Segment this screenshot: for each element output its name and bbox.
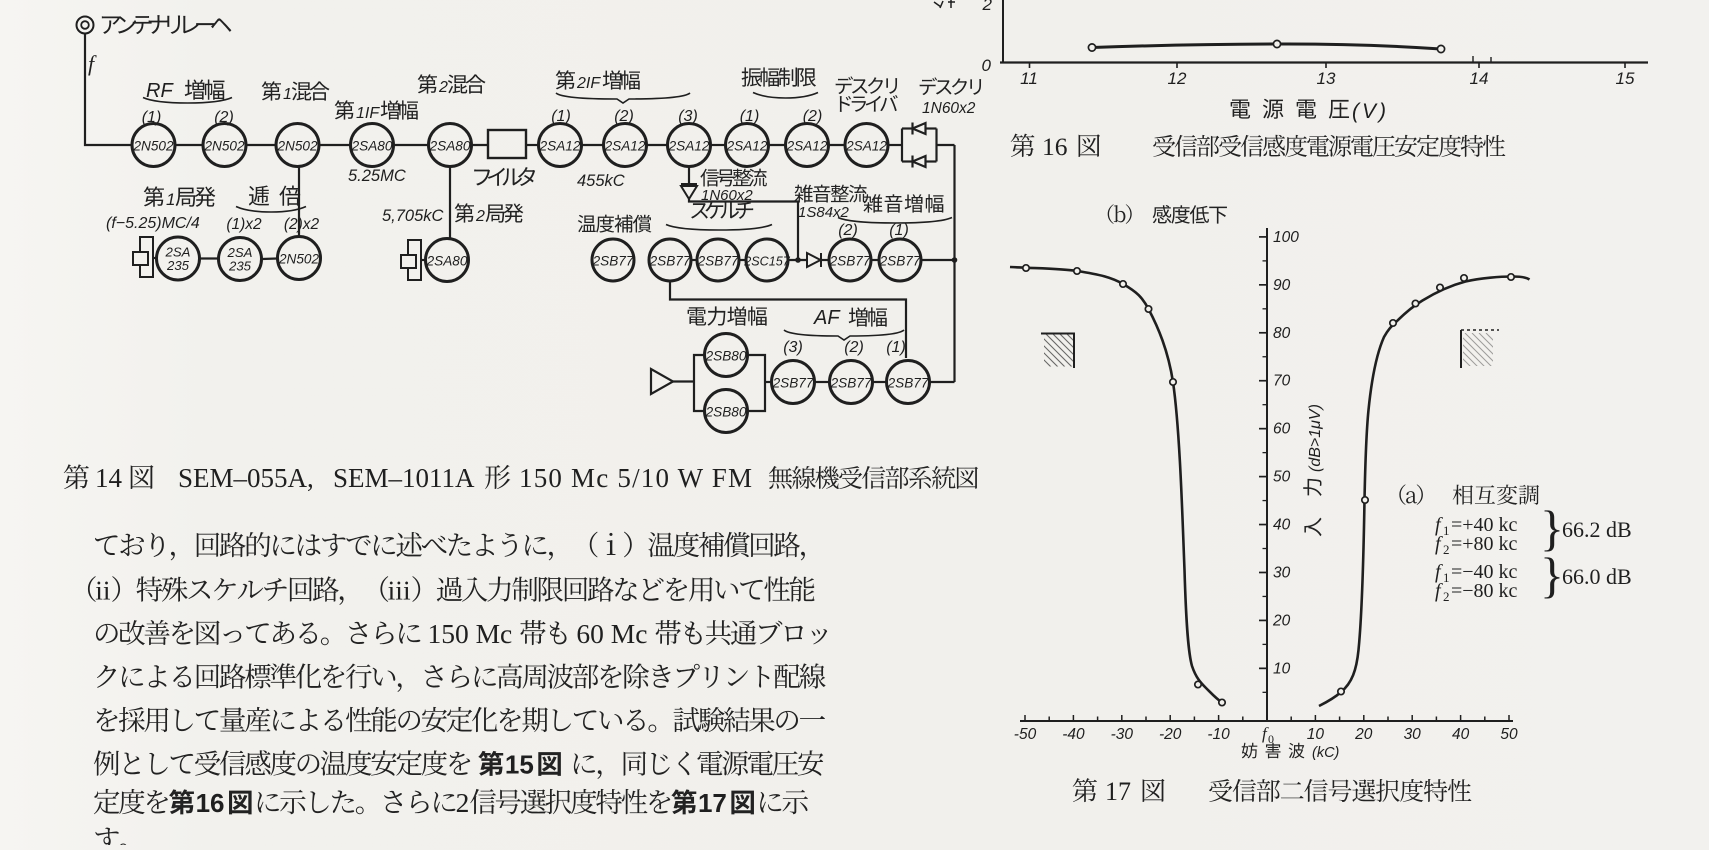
svg-text:2SA80: 2SA80	[426, 254, 468, 269]
svg-text:50: 50	[1500, 726, 1518, 743]
svg-text:2SB77: 2SB77	[887, 376, 929, 391]
svg-text:f: f	[88, 51, 97, 76]
svg-text:30: 30	[1273, 564, 1291, 581]
svg-text:f: f	[1435, 580, 1443, 602]
svg-text:2: 2	[982, 0, 993, 14]
svg-text:60: 60	[1273, 421, 1291, 438]
svg-text:66.2 dB: 66.2 dB	[1562, 517, 1632, 542]
svg-text:455kC: 455kC	[577, 172, 625, 190]
svg-text:16: 16	[196, 788, 225, 818]
svg-text:17: 17	[698, 788, 727, 818]
svg-text:1N60x2: 1N60x2	[922, 100, 976, 117]
svg-text:2SB77: 2SB77	[772, 376, 814, 391]
svg-text:2: 2	[1443, 589, 1450, 604]
svg-text:-30: -30	[1111, 726, 1134, 743]
svg-text:13: 13	[1317, 69, 1336, 88]
svg-text:2N502: 2N502	[276, 139, 317, 154]
svg-text:15: 15	[1616, 69, 1635, 88]
svg-text:150 Mc 5/10 W FM: 150 Mc 5/10 W FM	[519, 463, 753, 493]
svg-text:0: 0	[982, 56, 992, 75]
svg-text:235: 235	[166, 258, 190, 273]
svg-text:ii: ii	[95, 575, 111, 606]
svg-text:-40: -40	[1062, 726, 1085, 743]
svg-text:5,705kC: 5,705kC	[382, 207, 444, 225]
svg-text:(1): (1)	[886, 339, 906, 356]
svg-text:20: 20	[1272, 612, 1291, 629]
svg-text:2: 2	[475, 208, 485, 225]
svg-text:2SC157: 2SC157	[743, 255, 791, 269]
svg-text:50: 50	[1273, 469, 1291, 486]
svg-text:2SA12: 2SA12	[726, 139, 768, 154]
svg-text:100: 100	[1273, 229, 1299, 246]
svg-text:f: f	[1435, 533, 1443, 555]
svg-text:RF: RF	[146, 80, 174, 102]
svg-text:2IF: 2IF	[576, 75, 601, 92]
svg-text:2: 2	[438, 79, 448, 96]
svg-text:2SA80: 2SA80	[429, 139, 471, 154]
svg-text:80: 80	[1273, 325, 1291, 342]
svg-text:2SA12: 2SA12	[845, 139, 887, 154]
svg-text:2N502: 2N502	[132, 139, 173, 154]
svg-text:5.25MC: 5.25MC	[348, 167, 406, 185]
svg-text:11: 11	[1020, 69, 1038, 88]
svg-text:(kC): (kC)	[1312, 745, 1339, 761]
svg-text:60 Mc: 60 Mc	[570, 618, 655, 649]
svg-text:2: 2	[456, 787, 470, 818]
svg-text:2SB77: 2SB77	[649, 254, 691, 269]
svg-text:2SB80: 2SB80	[705, 405, 747, 420]
svg-text:14: 14	[1470, 69, 1489, 88]
svg-text:90: 90	[1273, 277, 1291, 294]
svg-text:1IF: 1IF	[356, 105, 380, 122]
svg-text:AF: AF	[813, 307, 841, 329]
svg-text:30: 30	[1404, 726, 1422, 743]
svg-text:14: 14	[95, 463, 123, 493]
svg-text:2SB80: 2SB80	[705, 349, 747, 364]
svg-text:(2): (2)	[844, 339, 864, 356]
svg-text:-20: -20	[1159, 726, 1182, 743]
svg-text:(f−5.25)MC/4: (f−5.25)MC/4	[106, 215, 200, 232]
svg-text:(1)x2: (1)x2	[226, 216, 262, 233]
svg-text:iii: iii	[388, 575, 411, 606]
svg-text:15: 15	[505, 750, 534, 780]
svg-text:66.0 dB: 66.0 dB	[1562, 564, 1632, 589]
svg-text:2SB77: 2SB77	[697, 254, 739, 269]
svg-text:16: 16	[1042, 132, 1068, 161]
svg-text:=+80 kc: =+80 kc	[1451, 533, 1518, 555]
svg-text:2SB77: 2SB77	[879, 254, 921, 269]
svg-text:2SB77: 2SB77	[829, 254, 871, 269]
svg-text:(2): (2)	[838, 222, 858, 239]
svg-text:40: 40	[1452, 726, 1470, 743]
svg-text:235: 235	[228, 259, 252, 274]
svg-text:2SA12: 2SA12	[539, 139, 581, 154]
svg-text:1: 1	[1443, 523, 1450, 538]
svg-text:2: 2	[1443, 542, 1450, 557]
svg-text:SEM–1011A: SEM–1011A	[333, 463, 475, 493]
svg-text:70: 70	[1273, 373, 1291, 390]
svg-text:12: 12	[1168, 69, 1187, 88]
svg-text:10: 10	[1307, 726, 1325, 743]
svg-text:1: 1	[1443, 570, 1450, 585]
svg-text:17: 17	[1105, 777, 1131, 806]
svg-text:(dB>1μV): (dB>1μV)	[1307, 404, 1324, 472]
svg-text:2SB77: 2SB77	[592, 254, 634, 269]
svg-text:40: 40	[1273, 517, 1291, 534]
svg-text:(V): (V)	[1352, 100, 1389, 123]
svg-text:1: 1	[283, 86, 292, 103]
svg-text:1: 1	[166, 190, 175, 209]
svg-text:2SA12: 2SA12	[668, 139, 710, 154]
svg-text:(1): (1)	[889, 222, 909, 239]
svg-text:}: }	[1540, 547, 1564, 603]
svg-text:-50: -50	[1014, 726, 1037, 743]
svg-text:(2)x2: (2)x2	[284, 216, 320, 233]
svg-text:SEM–055A,: SEM–055A,	[178, 463, 314, 493]
svg-text:2SA12: 2SA12	[604, 139, 646, 154]
svg-text:20: 20	[1354, 726, 1373, 743]
svg-text:-10: -10	[1207, 726, 1230, 743]
svg-text:150 Mc: 150 Mc	[421, 618, 520, 649]
svg-text:10: 10	[1273, 660, 1291, 677]
svg-text:2SA12: 2SA12	[786, 139, 828, 154]
svg-text:2N502: 2N502	[278, 252, 319, 267]
svg-text:2SA80: 2SA80	[351, 139, 393, 154]
svg-text:2N502: 2N502	[203, 139, 244, 154]
svg-text:2SB77: 2SB77	[830, 376, 872, 391]
svg-text:(3): (3)	[783, 339, 803, 356]
svg-text:=−80 kc: =−80 kc	[1451, 580, 1518, 602]
